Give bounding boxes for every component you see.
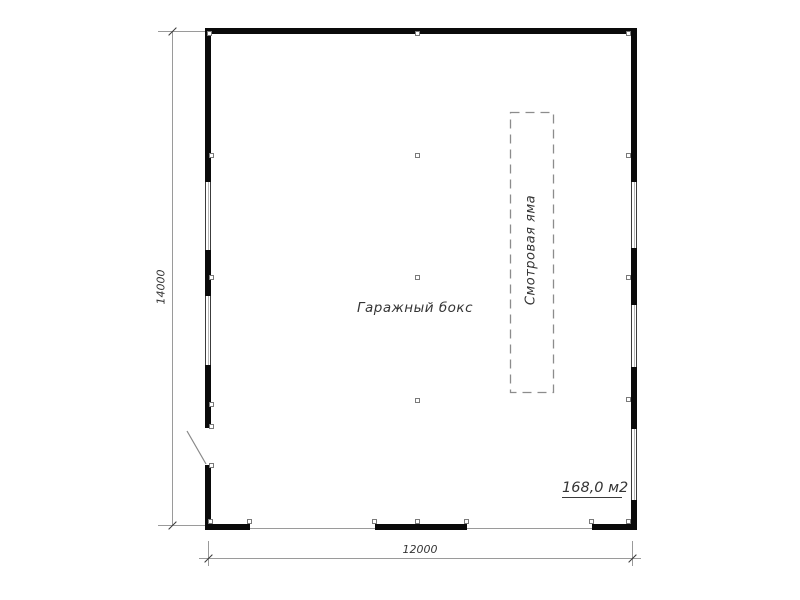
extension-line (158, 31, 205, 32)
window (631, 182, 637, 248)
column-axis-marker (626, 275, 631, 280)
window (631, 305, 637, 367)
area-label: 168,0 м2 (562, 480, 622, 498)
column-axis-marker (209, 153, 214, 158)
column-axis-marker (207, 31, 212, 36)
door-swing-line (180, 424, 220, 474)
wall-bottom-segment (375, 524, 467, 530)
column-axis-marker (415, 31, 420, 36)
wall-right-segment (631, 367, 637, 429)
wall-left-segment (205, 250, 211, 296)
wall-right-segment (631, 28, 637, 182)
dimension-label-width: 12000 (403, 543, 438, 556)
floor-plan: 14000 12000 Гаражный бокс Смотровая яма … (0, 0, 800, 600)
column-axis-marker (626, 153, 631, 158)
column-axis-marker (209, 275, 214, 280)
wall-bottom-segment (205, 524, 250, 530)
column-axis-marker (209, 424, 214, 429)
column-axis-marker (626, 397, 631, 402)
column-axis-marker (209, 402, 214, 407)
wall-top (205, 28, 637, 34)
column-axis-marker (415, 519, 420, 524)
column-axis-marker (589, 519, 594, 524)
window (631, 429, 637, 500)
column-axis-marker (372, 519, 377, 524)
window (205, 296, 211, 365)
extension-line (208, 541, 209, 566)
column-axis-marker (208, 519, 213, 524)
dimension-line-horizontal (199, 558, 641, 559)
inspection-pit-label: Смотровая яма (524, 195, 539, 305)
wall-left-segment (205, 28, 211, 182)
column-axis-marker (464, 519, 469, 524)
dimension-label-height: 14000 (155, 270, 168, 305)
wall-bottom-segment (592, 524, 637, 530)
extension-line (158, 525, 205, 526)
column-axis-marker (626, 31, 631, 36)
window (205, 182, 211, 250)
wall-left-segment (205, 365, 211, 428)
gate-opening-line (467, 528, 592, 529)
wall-right-segment (631, 248, 637, 305)
column-axis-marker (247, 519, 252, 524)
extension-line (632, 541, 633, 566)
column-axis-marker (209, 463, 214, 468)
column-axis-marker (415, 275, 420, 280)
column-axis-marker (626, 519, 631, 524)
room-label: Гаражный бокс (350, 300, 480, 316)
column-axis-marker (415, 153, 420, 158)
column-axis-marker (415, 398, 420, 403)
dimension-line-vertical (172, 31, 173, 525)
gate-opening-line (250, 528, 375, 529)
